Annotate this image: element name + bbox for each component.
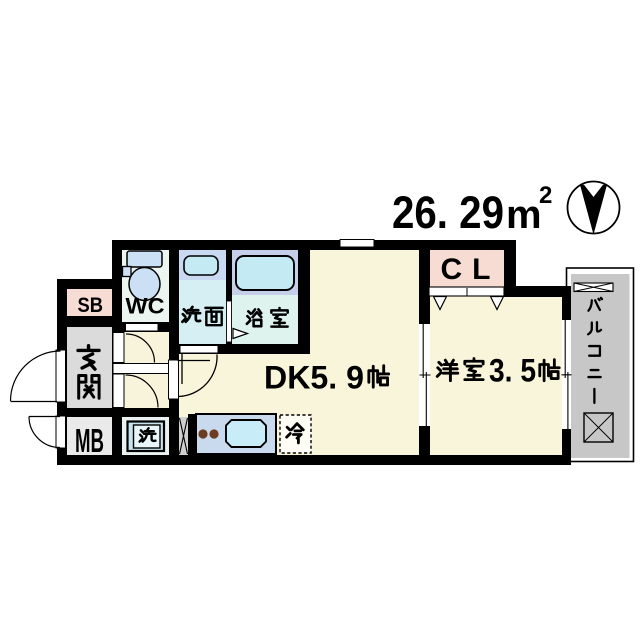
svg-text:CL: CL	[441, 253, 501, 286]
svg-text:WC: WC	[126, 294, 165, 319]
svg-text:2: 2	[539, 182, 552, 209]
svg-text:3. 5: 3. 5	[489, 353, 536, 389]
svg-text:SB: SB	[78, 294, 104, 317]
svg-text:MB: MB	[75, 422, 104, 459]
svg-text:26. 29: 26. 29	[392, 187, 504, 238]
svg-text:DK5. 9: DK5. 9	[264, 360, 364, 396]
svg-text:m: m	[506, 193, 542, 237]
